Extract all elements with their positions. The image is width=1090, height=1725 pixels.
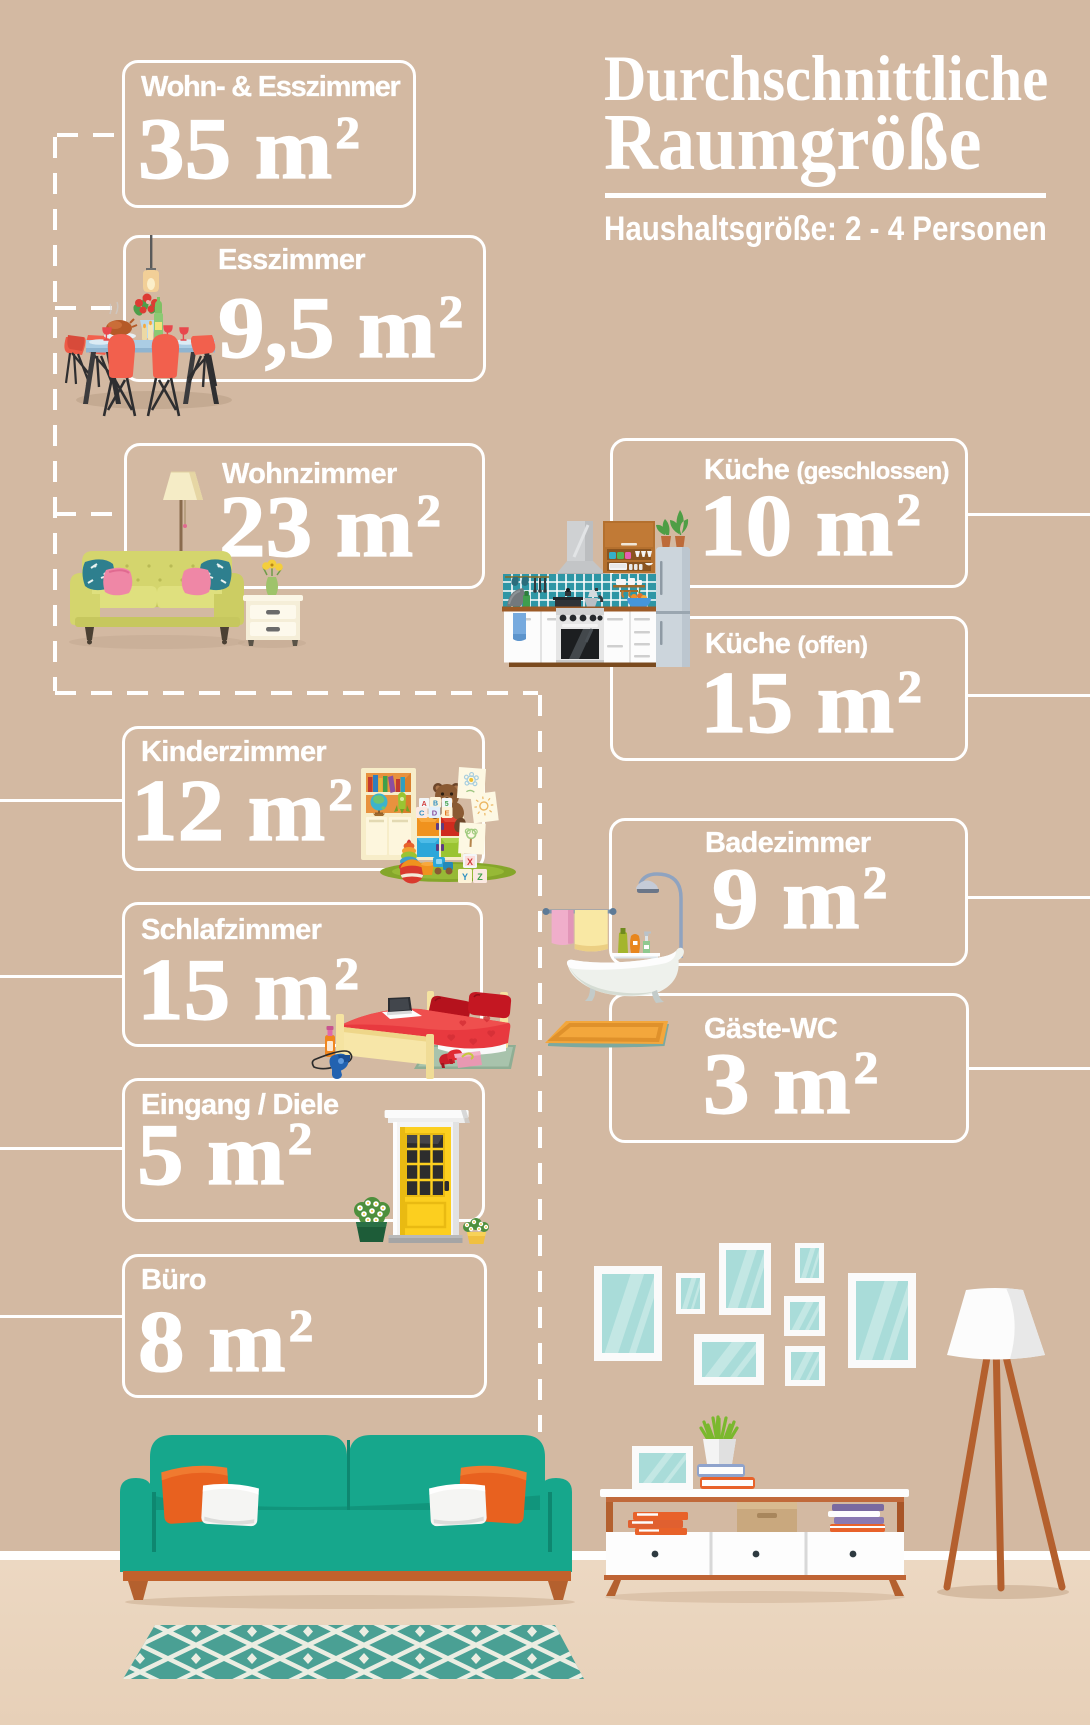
svg-text:X: X [467,857,473,867]
svg-text:Z: Z [477,872,483,882]
svg-text:C: C [419,809,425,818]
svg-text:Y: Y [462,872,468,882]
svg-text:5: 5 [445,801,449,808]
svg-text:E: E [444,809,449,818]
svg-text:A: A [422,801,427,808]
svg-text:D: D [432,809,438,818]
svg-text:B: B [433,801,438,808]
